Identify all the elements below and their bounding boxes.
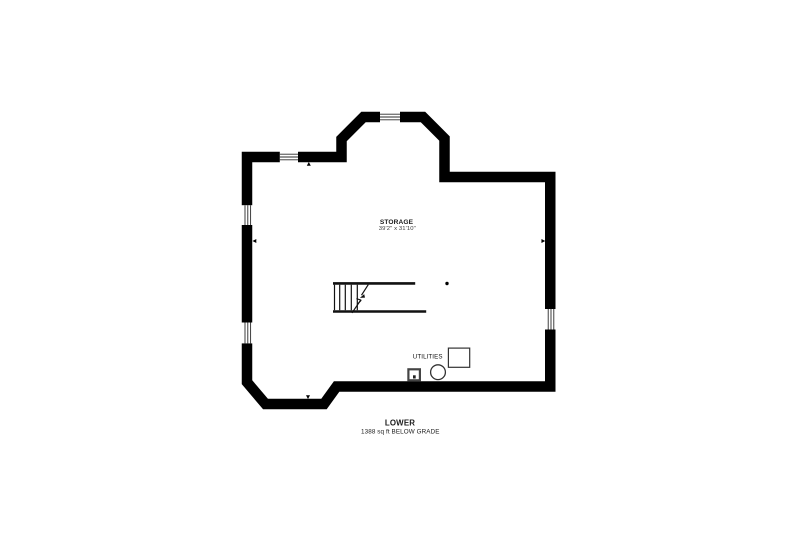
svg-text:1388 sq ft BELOW GRADE: 1388 sq ft BELOW GRADE <box>361 429 440 436</box>
svg-text:STORAGE: STORAGE <box>380 219 414 226</box>
svg-text:LOWER: LOWER <box>385 419 415 428</box>
svg-text:UTILITIES: UTILITIES <box>413 353 443 360</box>
svg-text:39'2" x 31'10": 39'2" x 31'10" <box>379 226 416 232</box>
